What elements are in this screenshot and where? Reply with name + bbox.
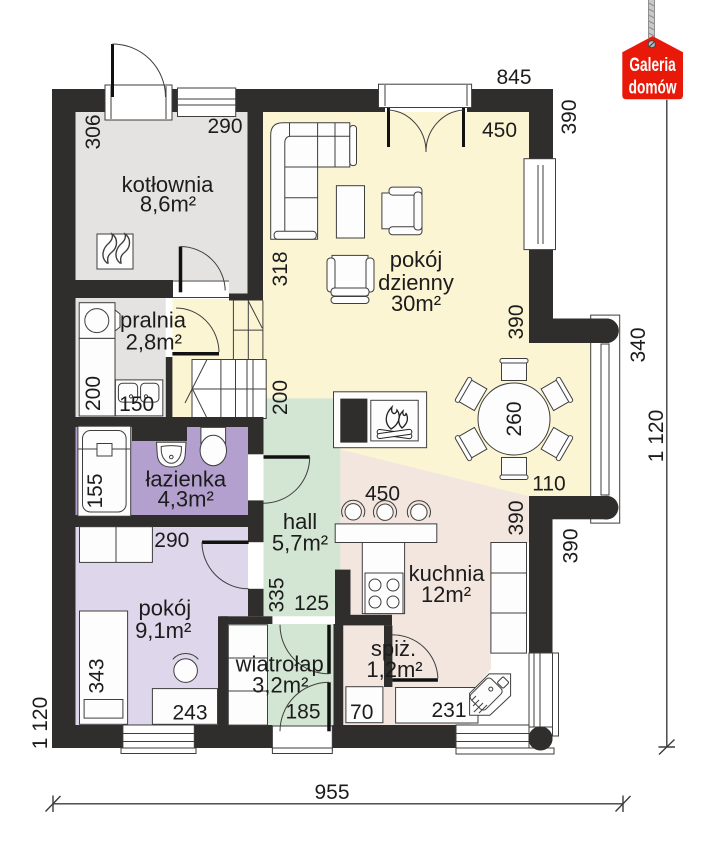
svg-text:155: 155 bbox=[84, 473, 107, 508]
svg-text:955: 955 bbox=[314, 781, 349, 804]
svg-text:318: 318 bbox=[269, 251, 292, 286]
svg-text:390: 390 bbox=[558, 99, 581, 134]
svg-text:200: 200 bbox=[269, 380, 292, 415]
svg-text:343: 343 bbox=[86, 658, 109, 693]
svg-text:30m²: 30m² bbox=[391, 291, 441, 316]
svg-text:450: 450 bbox=[482, 119, 517, 142]
svg-text:domów: domów bbox=[629, 76, 677, 98]
svg-text:290: 290 bbox=[154, 529, 189, 552]
svg-text:1,2m²: 1,2m² bbox=[366, 657, 422, 682]
svg-text:pokój: pokój bbox=[390, 247, 443, 272]
svg-text:8,6m²: 8,6m² bbox=[140, 191, 196, 216]
svg-text:200: 200 bbox=[82, 376, 105, 411]
svg-text:4,3m²: 4,3m² bbox=[158, 487, 214, 512]
svg-text:9,1m²: 9,1m² bbox=[135, 618, 191, 643]
svg-text:390: 390 bbox=[505, 304, 528, 339]
svg-text:450: 450 bbox=[365, 482, 400, 505]
svg-text:306: 306 bbox=[82, 114, 105, 149]
svg-text:5,7m²: 5,7m² bbox=[272, 531, 328, 556]
svg-text:125: 125 bbox=[294, 592, 329, 615]
svg-text:260: 260 bbox=[503, 401, 526, 436]
svg-text:12m²: 12m² bbox=[421, 582, 471, 607]
svg-text:290: 290 bbox=[207, 115, 242, 138]
svg-text:150: 150 bbox=[119, 393, 154, 416]
svg-text:110: 110 bbox=[532, 473, 565, 496]
svg-text:340: 340 bbox=[627, 327, 650, 362]
svg-text:3,2m²: 3,2m² bbox=[252, 672, 308, 697]
svg-text:1 120: 1 120 bbox=[645, 410, 668, 463]
svg-text:243: 243 bbox=[172, 702, 207, 725]
svg-text:845: 845 bbox=[496, 66, 531, 89]
svg-text:185: 185 bbox=[285, 701, 320, 724]
svg-text:Galeria: Galeria bbox=[629, 54, 676, 76]
svg-text:390: 390 bbox=[560, 528, 583, 563]
svg-text:1 120: 1 120 bbox=[29, 697, 52, 750]
svg-text:pokój: pokój bbox=[139, 596, 192, 621]
svg-text:2,8m²: 2,8m² bbox=[126, 330, 182, 355]
svg-text:70: 70 bbox=[350, 701, 373, 724]
svg-text:335: 335 bbox=[266, 577, 289, 612]
svg-text:390: 390 bbox=[505, 500, 528, 535]
svg-text:231: 231 bbox=[431, 699, 466, 722]
